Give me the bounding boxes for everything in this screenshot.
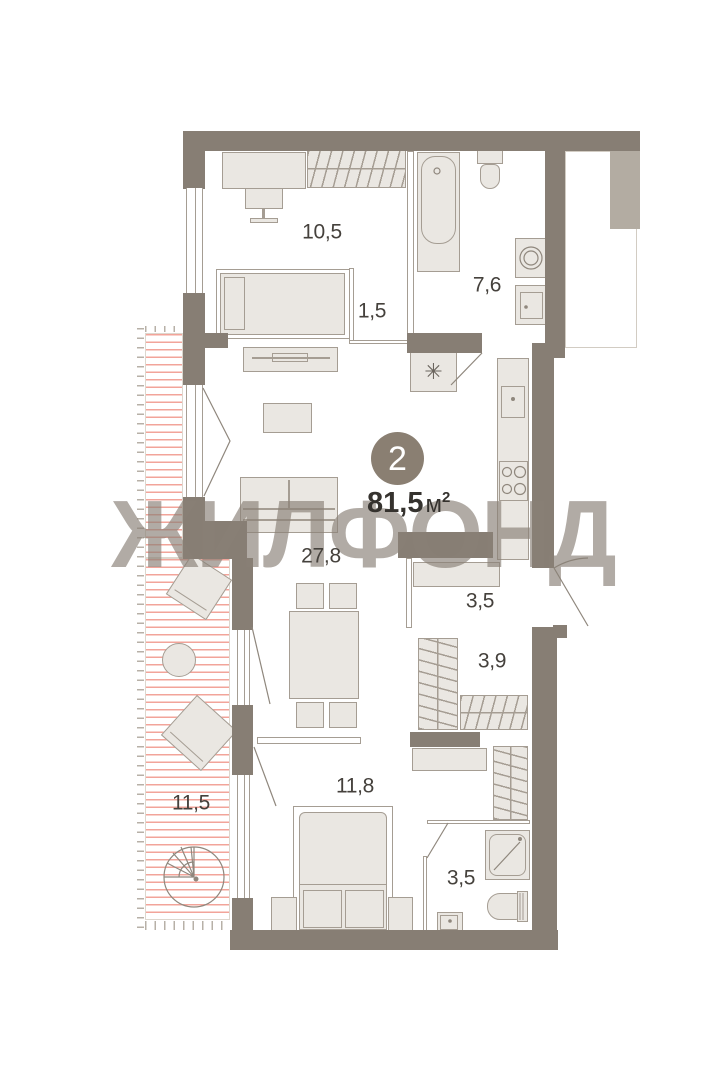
blanket-edge	[299, 884, 387, 885]
balcony-door-swing	[203, 388, 230, 496]
toilet-tank-bottom	[517, 891, 528, 922]
total-area-label: 81,5м2	[367, 489, 450, 518]
double-bed-pillow-left	[303, 890, 342, 928]
window-bedroom-top	[186, 188, 203, 293]
dining-chair-4	[329, 702, 357, 728]
bedroom-door-swing	[254, 747, 276, 806]
small-sink-basin	[440, 915, 458, 930]
bathroom-sink-basin	[520, 292, 543, 319]
shower-tray	[489, 834, 526, 876]
wall-bottom	[230, 930, 558, 950]
kitchen-sink	[501, 386, 525, 418]
partition-storage-bottom	[349, 340, 408, 344]
total-area-superscript: 2	[442, 489, 450, 506]
room-count-value: 2	[388, 442, 407, 476]
terrace-edge-ticks-left	[137, 328, 144, 932]
dining-table	[289, 611, 359, 699]
toilet-bowl-bottom	[487, 893, 519, 920]
wall-stub-bedroom	[205, 333, 228, 348]
wall-top	[183, 131, 640, 151]
partition-bathroom2-left	[423, 856, 427, 932]
wall-wardrobe	[410, 732, 480, 747]
wardrobe-hangers-top	[307, 150, 406, 188]
window-living-lower	[237, 630, 250, 705]
desk-chair-stem	[262, 209, 265, 218]
toilet-bowl-top	[480, 164, 500, 189]
desk-chair-base	[250, 218, 278, 223]
room-area-label-terrace: 11,5	[172, 793, 210, 814]
terrace-edge-ticks-top	[145, 326, 183, 332]
toilet-tank-top	[477, 150, 503, 164]
window-bedroom-bottom	[237, 775, 250, 898]
coffee-table	[263, 403, 312, 433]
wardrobe-unit-horizontal	[460, 695, 528, 730]
wall-lower-left-2	[232, 705, 253, 775]
room-count-badge: 2	[371, 432, 424, 485]
room-area-label-bedroom-top: 10,5	[302, 222, 342, 243]
wall-left-1	[183, 151, 205, 189]
living-door-swing	[252, 627, 270, 704]
bedroom-console	[257, 737, 361, 744]
wall-right-lower	[532, 627, 557, 932]
double-bed-pillow-right	[345, 890, 384, 928]
wardrobe-unit-vertical	[418, 638, 458, 730]
partition-storage	[349, 268, 354, 344]
wall-bathroom-top-bottom	[407, 333, 482, 353]
washing-machine	[515, 238, 548, 278]
water-heater-icon: ✳	[411, 353, 456, 391]
dining-chair-3	[296, 702, 324, 728]
wall-bathroom-right	[545, 151, 565, 356]
room-area-label-bathroom-bottom: 3,5	[447, 868, 475, 889]
room-area-label-living-room: 27,8	[301, 546, 341, 567]
total-area-unit: м	[425, 491, 442, 518]
total-area-value: 81,5	[367, 487, 423, 519]
room-area-label-hallway: 3,5	[466, 591, 494, 612]
watermark: ЖИЛФОНД	[111, 487, 614, 583]
wall-lower-left-3	[232, 898, 253, 932]
terrace-edge-ticks-bottom	[145, 921, 230, 930]
bathroom2-door-swing	[427, 823, 448, 858]
wardrobe-shelf	[412, 748, 487, 771]
desk-chair	[245, 188, 283, 209]
water-heater: ✳	[410, 352, 457, 392]
partition-bathroom2-top	[427, 820, 530, 824]
wall-left-2	[183, 293, 205, 385]
single-bed-pillow	[224, 277, 245, 330]
room-area-label-wardrobe: 3,9	[478, 651, 506, 672]
terrace-table	[162, 643, 196, 677]
room-area-label-storage: 1,5	[358, 301, 386, 322]
wall-top-right-light	[610, 151, 640, 229]
room-area-label-bathroom-top: 7,6	[473, 275, 501, 296]
floor-plan: ✳	[0, 0, 726, 1080]
partition-bathroom-top	[407, 151, 414, 334]
nightstand-right	[388, 897, 413, 931]
tv-bar	[252, 357, 330, 359]
desk	[222, 152, 306, 189]
nightstand-left	[271, 897, 297, 931]
room-area-label-bedroom-bottom: 11,8	[336, 776, 374, 797]
wardrobe-unit-vertical-2	[493, 746, 528, 820]
bathtub-inner	[421, 156, 456, 244]
